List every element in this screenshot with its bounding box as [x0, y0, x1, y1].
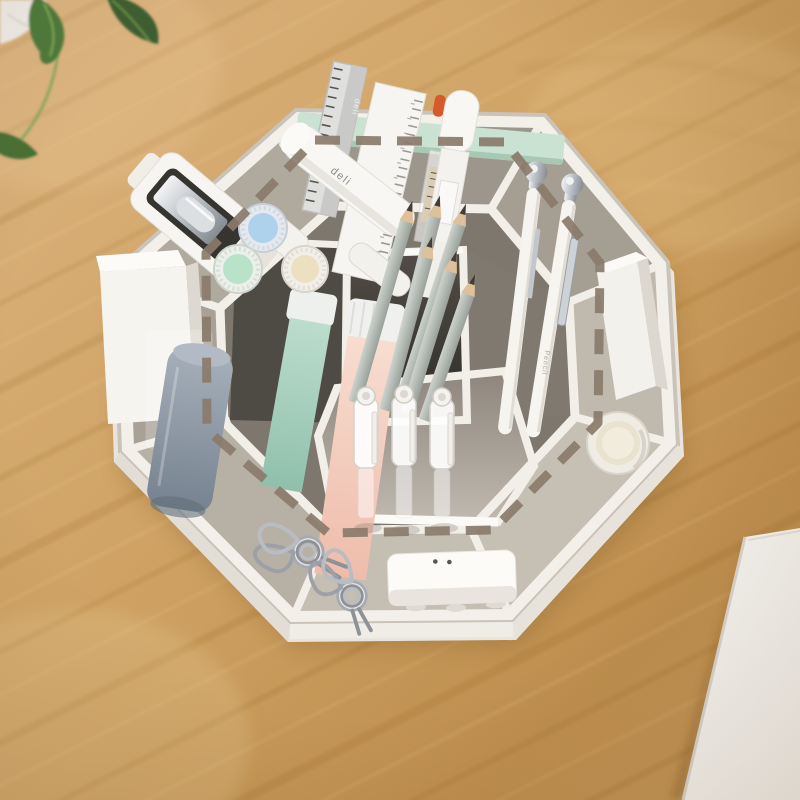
product-photo: deli deli [0, 0, 800, 800]
organizer-photo-scene: deli deli [0, 0, 800, 800]
vignette [0, 0, 800, 800]
